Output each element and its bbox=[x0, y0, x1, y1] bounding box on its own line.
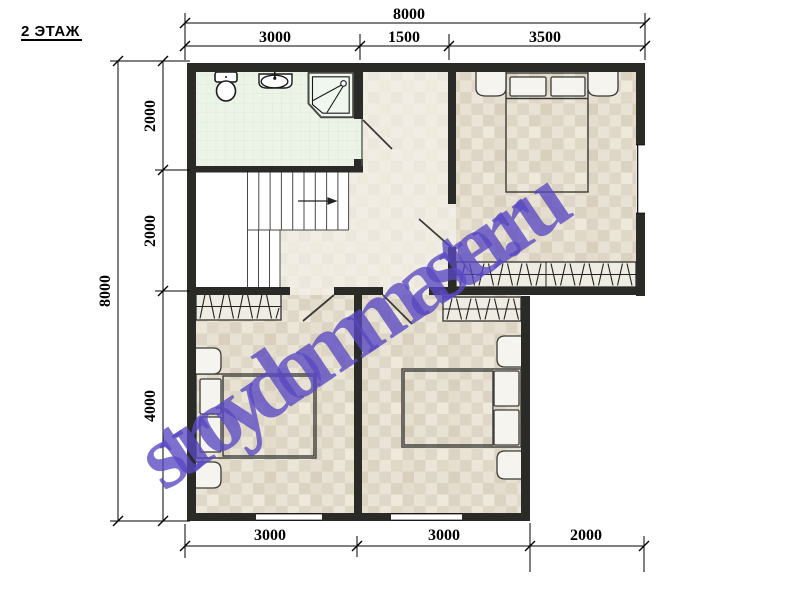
svg-text:2000: 2000 bbox=[570, 527, 602, 544]
svg-text:2000: 2000 bbox=[142, 100, 159, 132]
svg-text:2 ЭТАЖ: 2 ЭТАЖ bbox=[21, 23, 80, 40]
svg-text:3000: 3000 bbox=[254, 527, 286, 544]
svg-text:3500: 3500 bbox=[529, 29, 561, 46]
svg-text:1500: 1500 bbox=[388, 29, 420, 46]
svg-text:3000: 3000 bbox=[428, 527, 460, 544]
svg-text:3000: 3000 bbox=[259, 29, 291, 46]
svg-text:8000: 8000 bbox=[97, 275, 114, 307]
svg-text:2000: 2000 bbox=[142, 215, 159, 247]
svg-text:8000: 8000 bbox=[393, 6, 425, 23]
